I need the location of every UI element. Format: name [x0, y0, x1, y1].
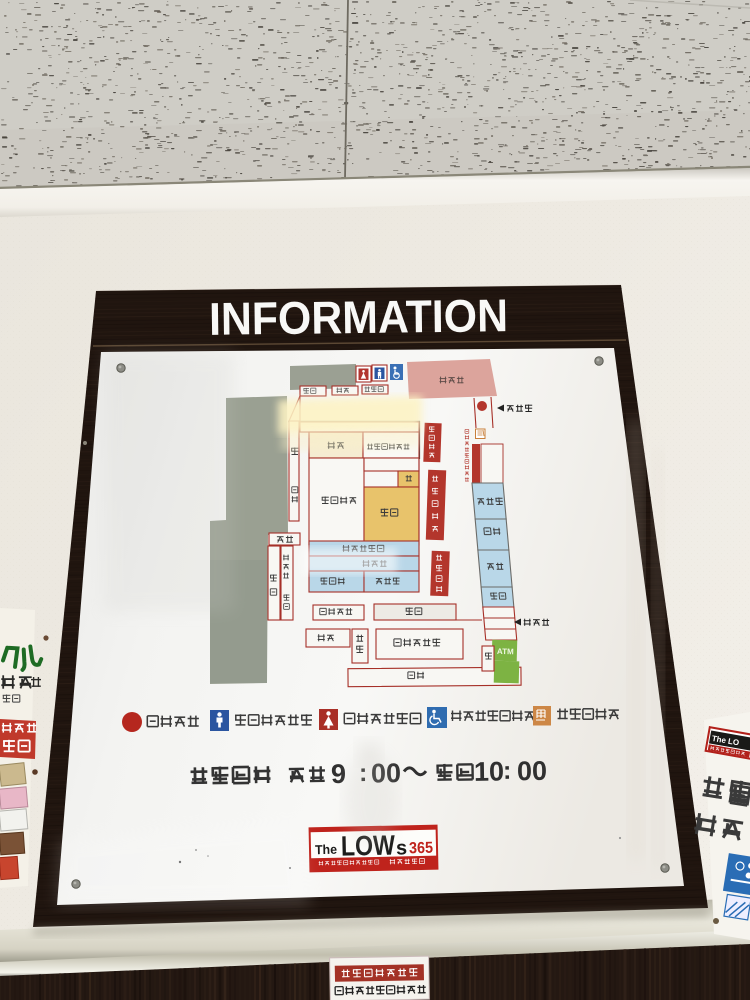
svg-text:The: The	[315, 842, 337, 857]
svg-text:INFORMATION: INFORMATION	[209, 289, 509, 345]
svg-text:ATM: ATM	[497, 647, 514, 656]
svg-text:10: 10	[474, 756, 505, 786]
svg-text:00: 00	[517, 756, 548, 786]
svg-text:9: 9	[331, 759, 347, 789]
svg-text:s: s	[396, 837, 408, 859]
svg-text:365: 365	[409, 840, 433, 858]
svg-text::: :	[503, 757, 512, 785]
